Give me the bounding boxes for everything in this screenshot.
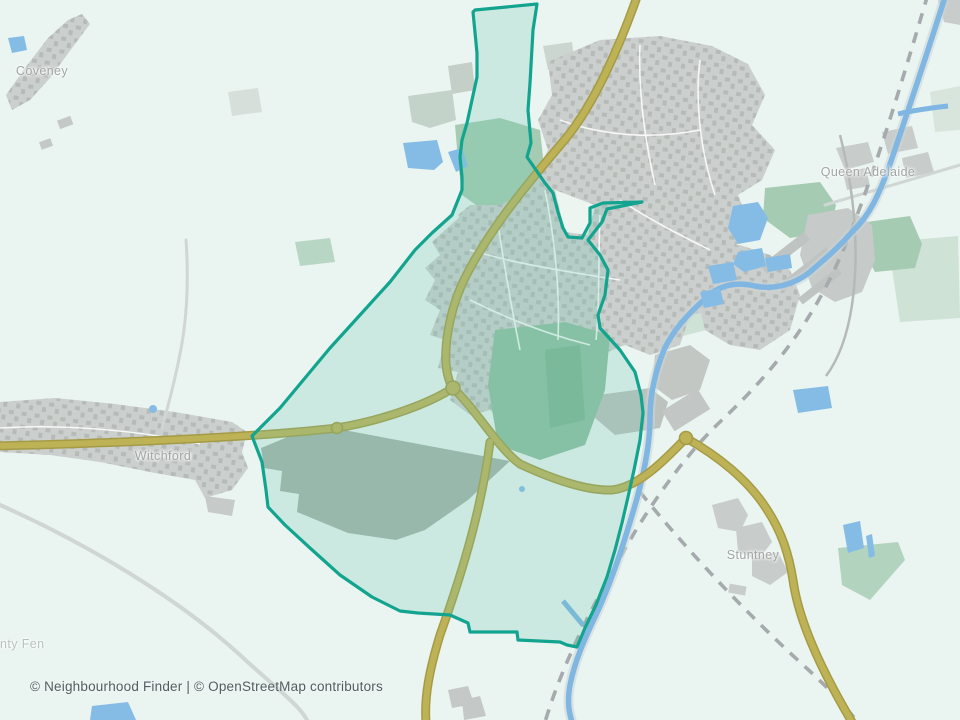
place-label-stuntney: Stuntney <box>727 548 780 562</box>
place-label-coveney: Coveney <box>16 64 68 78</box>
map-canvas[interactable] <box>0 0 960 720</box>
place-label-witchford: Witchford <box>135 449 191 463</box>
map-viewport[interactable]: Coveney Witchford Queen Adelaide Stuntne… <box>0 0 960 720</box>
place-label-county-fen: nty Fen <box>0 637 45 651</box>
lake <box>403 140 443 170</box>
place-label-queen-adelaide: Queen Adelaide <box>821 165 916 179</box>
attribution: © Neighbourhood Finder | © OpenStreetMap… <box>30 679 383 694</box>
